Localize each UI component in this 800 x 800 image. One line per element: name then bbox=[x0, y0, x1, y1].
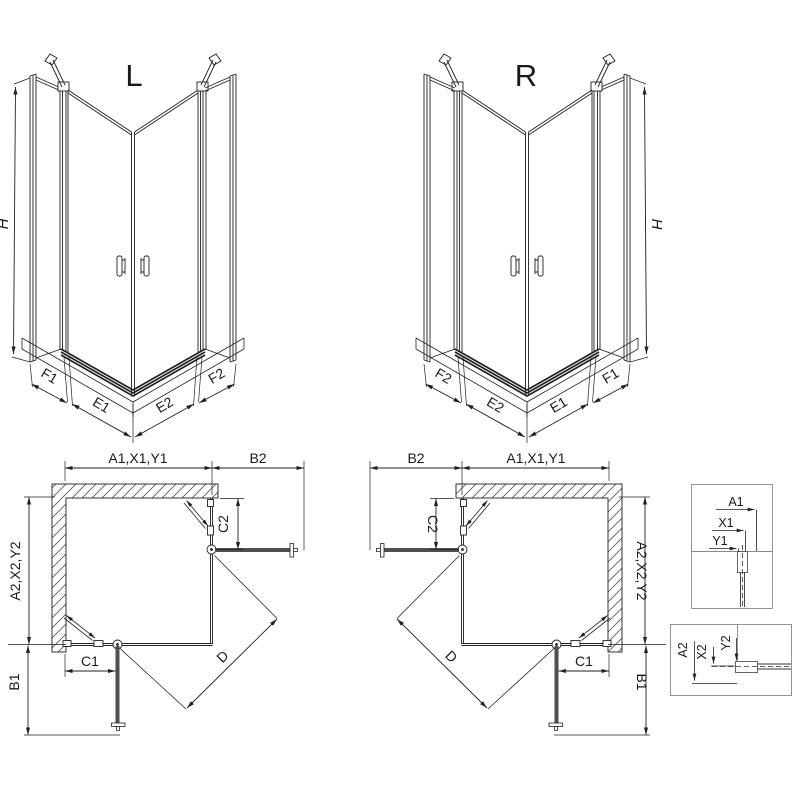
plan-left-b2-dim: B2 bbox=[249, 450, 266, 466]
iso-view-right: R H F2 E2 E1 F1 bbox=[416, 54, 665, 443]
iso-view-left: L H F1 E1 E2 F2 bbox=[0, 54, 244, 443]
plan-left-top-width-dim: A1,X1,Y1 bbox=[108, 450, 167, 466]
plan-right-depth-dim: A2,X2,Y2 bbox=[634, 541, 650, 600]
iso-right-dim-e1: E1 bbox=[547, 393, 570, 416]
detail-bottom-border bbox=[671, 625, 792, 696]
technical-drawing: L H F1 E1 E2 F2 R H F2 E2 E1 F1 A1,X1,Y1… bbox=[0, 0, 800, 800]
iso-right-geometry bbox=[416, 54, 648, 443]
plan-left-c2-dim: C2 bbox=[215, 515, 231, 533]
plan-left-b1-dim: B1 bbox=[6, 673, 22, 690]
iso-right-height-dim-label: H bbox=[648, 219, 665, 230]
iso-left-dim-f1: F1 bbox=[38, 365, 60, 387]
plan-left-d-dim: D bbox=[213, 647, 231, 665]
iso-left-height-dim-label: H bbox=[0, 218, 12, 229]
detail-top-dim-x1: X1 bbox=[718, 516, 733, 530]
plan-view-right: B2 A1,X1,Y1 A2,X2,Y2 C2 C1 B1 D bbox=[370, 450, 666, 735]
detail-top-dim-y1: Y1 bbox=[712, 534, 727, 548]
detail-bottom-dim-y2: Y2 bbox=[719, 635, 733, 650]
detail-box-top: A1 X1 Y1 bbox=[692, 485, 773, 609]
plan-right-c1-dim: C1 bbox=[575, 653, 593, 669]
iso-right-dim-f2: F2 bbox=[432, 365, 454, 387]
plan-right-b1-dim: B1 bbox=[634, 673, 650, 690]
iso-right-dim-e2: E2 bbox=[484, 393, 507, 416]
drawing-page: L H F1 E1 E2 F2 R H F2 E2 E1 F1 A1,X1,Y1… bbox=[0, 0, 800, 800]
iso-left-dim-e2: E2 bbox=[153, 393, 176, 416]
detail-bottom-dim-a2: A2 bbox=[676, 642, 690, 657]
plan-left-wall-hatch bbox=[52, 484, 218, 652]
iso-right-dim-f1: F1 bbox=[599, 365, 621, 387]
plan-left-c1-dim: C1 bbox=[81, 653, 99, 669]
plan-left-depth-dim: A2,X2,Y2 bbox=[7, 541, 23, 600]
iso-right-title: R bbox=[515, 58, 537, 93]
plan-view-left: A1,X1,Y1 B2 A2,X2,Y2 C2 C1 B1 D bbox=[6, 450, 304, 735]
plan-right-c2-dim: C2 bbox=[425, 515, 441, 533]
iso-left-title: L bbox=[125, 58, 142, 93]
iso-left-geometry bbox=[12, 54, 244, 443]
iso-left-dim-e1: E1 bbox=[90, 393, 113, 416]
plan-right-wall-hatch bbox=[456, 484, 622, 652]
plan-right-b2-dim: B2 bbox=[407, 450, 424, 466]
detail-bottom-dim-x2: X2 bbox=[695, 644, 709, 659]
iso-left-dim-f2: F2 bbox=[205, 365, 227, 387]
plan-right-top-width-dim: A1,X1,Y1 bbox=[506, 450, 565, 466]
detail-box-bottom: A2 X2 Y2 bbox=[671, 625, 792, 696]
plan-right-d-dim: D bbox=[442, 647, 460, 665]
detail-top-dim-a1: A1 bbox=[728, 495, 743, 509]
